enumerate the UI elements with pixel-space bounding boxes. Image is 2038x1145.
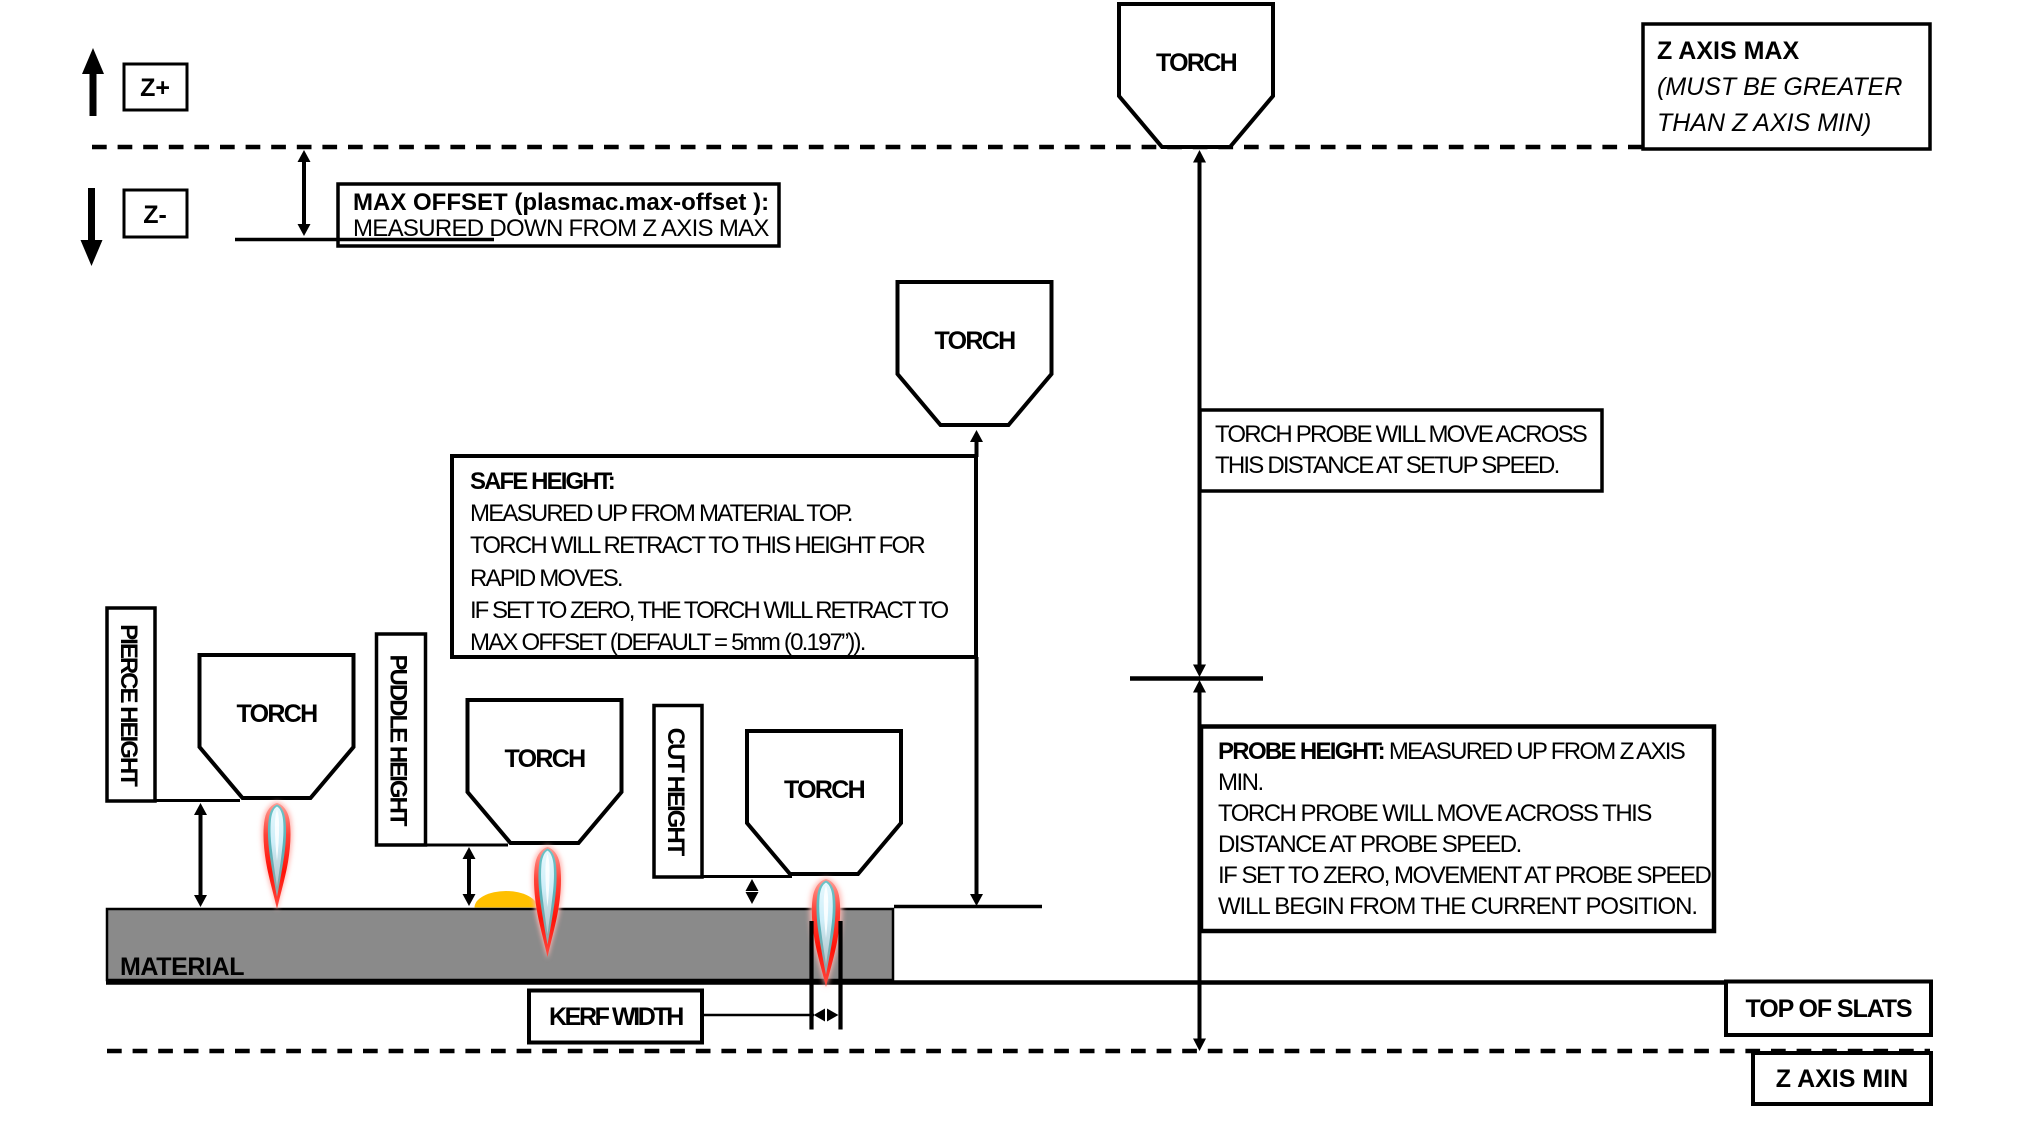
svg-text:MAX OFFSET (plasmac.max-offset: MAX OFFSET (plasmac.max-offset ): — [353, 189, 769, 216]
svg-text:PROBE HEIGHT: MEASURED UP FROM: PROBE HEIGHT: MEASURED UP FROM Z AXIS — [1218, 738, 1685, 765]
svg-text:DISTANCE AT PROBE SPEED.: DISTANCE AT PROBE SPEED. — [1218, 831, 1521, 858]
svg-text:IF SET TO ZERO, MOVEMENT AT P: IF SET TO ZERO, MOVEMENT AT PROBE SPEED — [1218, 862, 1711, 889]
svg-text:CUT HEIGHT: CUT HEIGHT — [662, 728, 689, 857]
svg-text:TORCH PROBE WILL MOVE ACROSS T: TORCH PROBE WILL MOVE ACROSS THIS — [1218, 800, 1651, 827]
svg-text:THIS DISTANCE AT SETUP SPEED.: THIS DISTANCE AT SETUP SPEED. — [1215, 452, 1559, 479]
svg-text:Z AXIS MAX: Z AXIS MAX — [1657, 37, 1799, 65]
svg-text:PIERCE HEIGHT: PIERCE HEIGHT — [115, 624, 142, 787]
svg-text:MIN.: MIN. — [1218, 769, 1263, 796]
svg-text:THAN Z AXIS MIN): THAN Z AXIS MIN) — [1657, 109, 1871, 137]
svg-text:MEASURED UP FROM MATERIAL TOP.: MEASURED UP FROM MATERIAL TOP. — [470, 500, 852, 527]
svg-text:MATERIAL: MATERIAL — [120, 953, 244, 981]
svg-text:MAX OFFSET (DEFAULT = 5mm (0.1: MAX OFFSET (DEFAULT = 5mm (0.197”)). — [470, 629, 865, 656]
svg-text:Z-: Z- — [143, 201, 167, 229]
svg-text:PUDDLE HEIGHT: PUDDLE HEIGHT — [385, 654, 412, 826]
svg-text:(MUST BE GREATER: (MUST BE GREATER — [1657, 73, 1902, 101]
svg-text:SAFE HEIGHT:: SAFE HEIGHT: — [470, 468, 614, 495]
svg-text:RAPID MOVES.: RAPID MOVES. — [470, 565, 622, 592]
svg-text:WILL BEGIN FROM THE CURRENT PO: WILL BEGIN FROM THE CURRENT POSITION. — [1218, 893, 1697, 920]
svg-text:Z AXIS MIN: Z AXIS MIN — [1776, 1065, 1908, 1093]
svg-text:TORCH PROBE WILL MOVE ACROSS: TORCH PROBE WILL MOVE ACROSS — [1215, 421, 1587, 448]
svg-text:Z+: Z+ — [140, 74, 170, 102]
svg-text:TOP OF SLATS: TOP OF SLATS — [1746, 995, 1912, 1023]
svg-text:IF SET TO ZERO, THE TORCH WILL: IF SET TO ZERO, THE TORCH WILL RETRACT T… — [470, 597, 949, 624]
svg-text:TORCH WILL RETRACT TO THIS HEI: TORCH WILL RETRACT TO THIS HEIGHT FOR — [470, 532, 925, 559]
svg-text:KERF WIDTH: KERF WIDTH — [549, 1003, 683, 1031]
